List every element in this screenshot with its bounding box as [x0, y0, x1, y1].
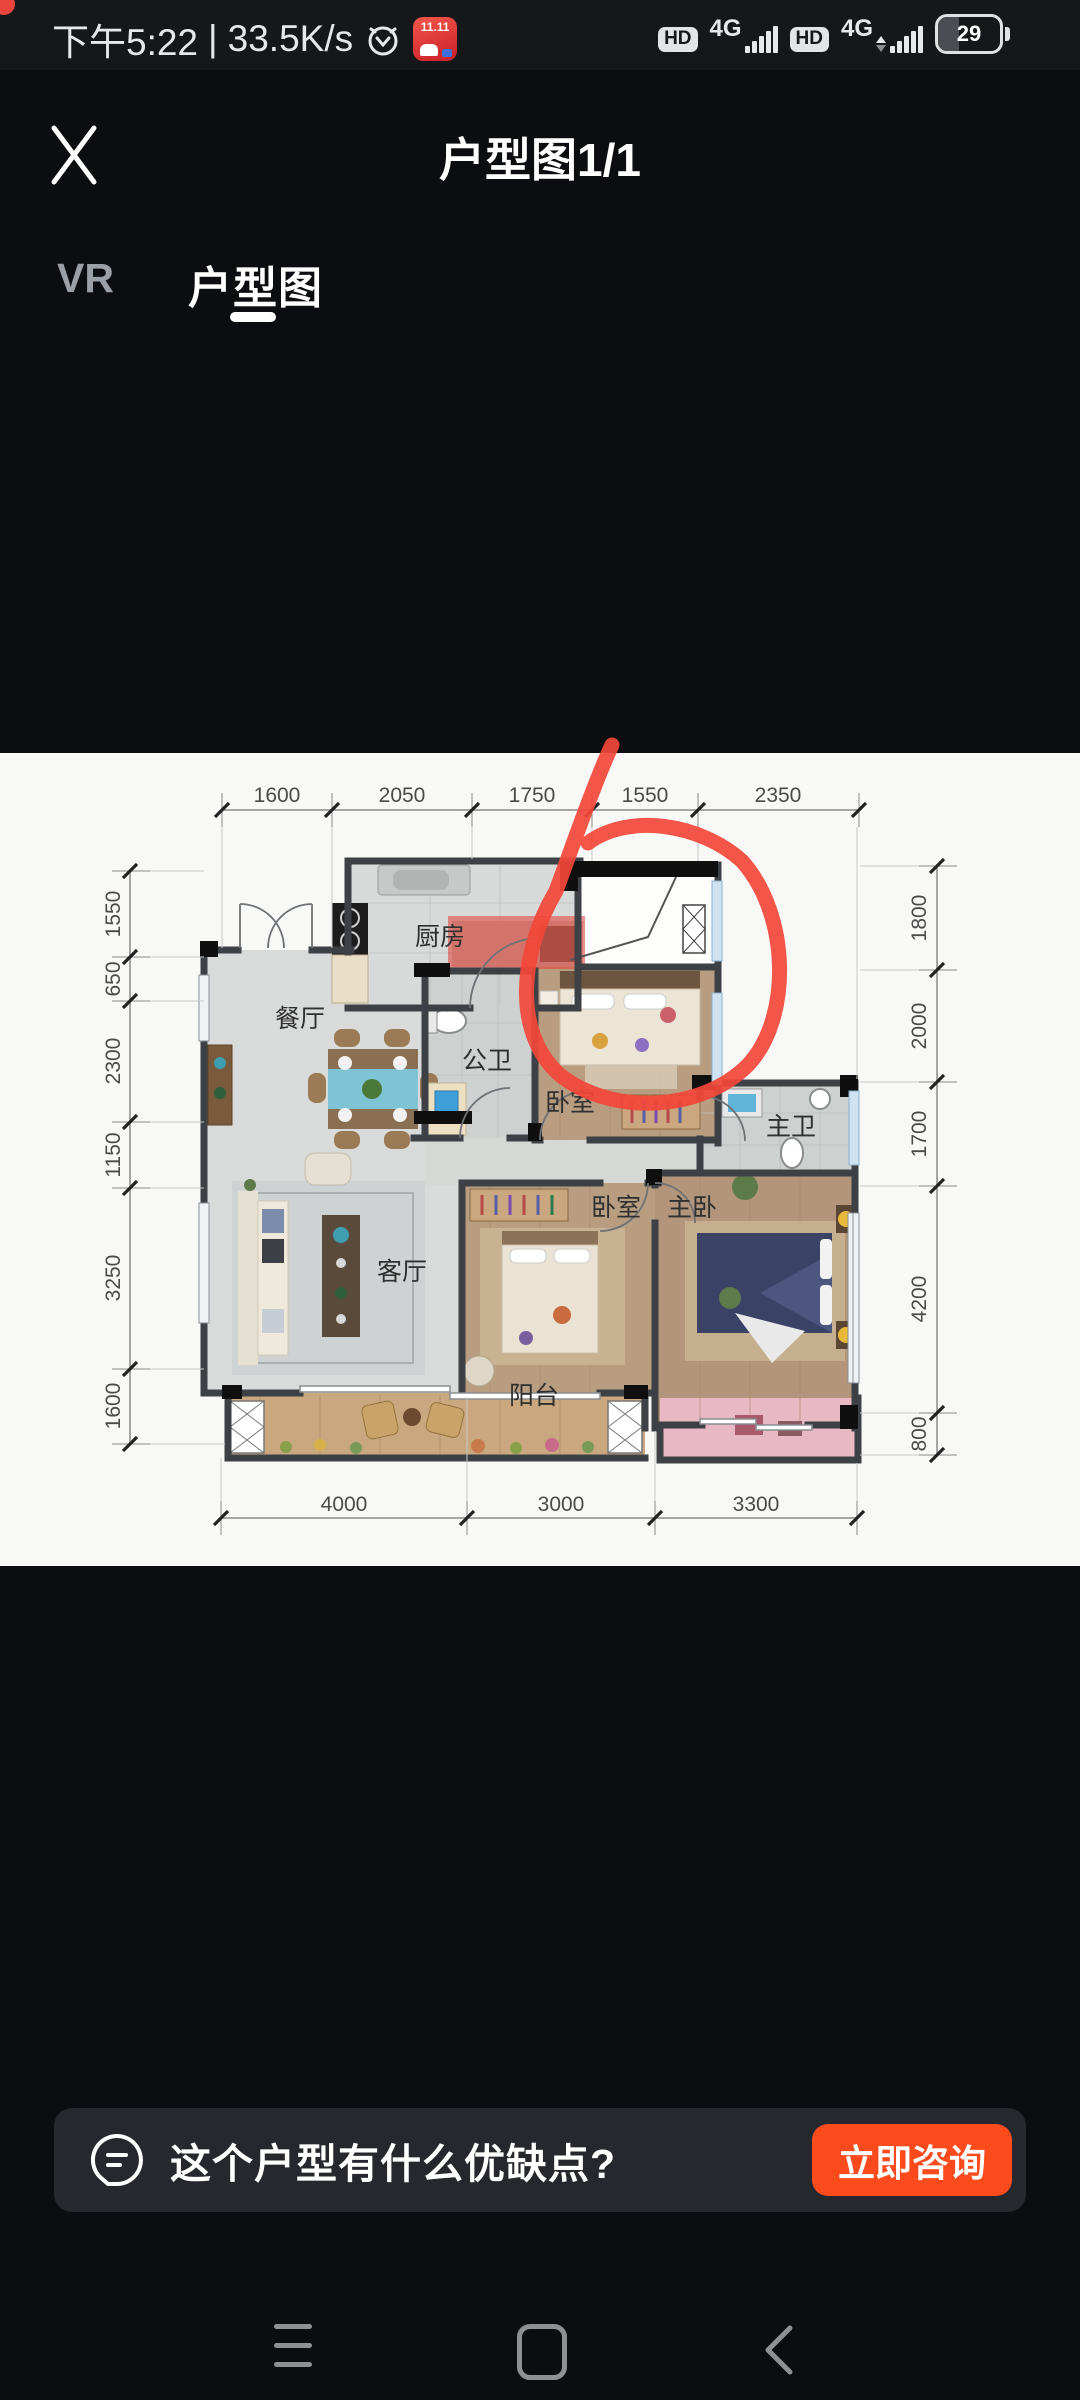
- dim-left-2: 2300: [102, 1038, 125, 1085]
- dim-left-4: 3250: [102, 1255, 125, 1302]
- consult-now-button[interactable]: 立即咨询: [812, 2124, 1012, 2196]
- room-label-master-bath: 主卫: [766, 1113, 816, 1141]
- dim-top-1: 2050: [379, 784, 426, 807]
- dim-bottom-1: 3000: [538, 1493, 585, 1516]
- signal-sim2: 4G: [841, 26, 923, 55]
- promo-app-badge: 11.11: [413, 20, 457, 34]
- dim-top-4: 2350: [755, 784, 802, 807]
- back-chevron-icon[interactable]: [760, 2324, 796, 2376]
- battery-percent: 29: [957, 21, 981, 47]
- recents-menu-icon[interactable]: [274, 2324, 312, 2367]
- home-icon[interactable]: [517, 2324, 567, 2380]
- signal-bars-icon-2: [890, 26, 923, 53]
- net-type-2: 4G: [841, 15, 873, 43]
- dim-right-1: 2000: [908, 1003, 931, 1050]
- status-bar: 下午5:22 | 33.5K/s 11.11 HD 4G HD 4G: [0, 0, 1080, 70]
- clock-time: 下午5:22: [52, 12, 198, 66]
- dim-left-1: 650: [102, 961, 125, 996]
- alarm-icon: [363, 19, 403, 59]
- consult-bar[interactable]: 这个户型有什么优缺点? 立即咨询: [54, 2108, 1026, 2212]
- signal-sim1: 4G: [710, 26, 778, 55]
- hd-badge-1: HD: [658, 27, 697, 52]
- room-label-balcony: 阳台: [509, 1382, 559, 1410]
- network-speed: 33.5K/s: [228, 18, 353, 60]
- room-label-public-bath: 公卫: [462, 1047, 512, 1075]
- chat-icon: [86, 2129, 148, 2191]
- consult-question[interactable]: 这个户型有什么优缺点?: [170, 2130, 616, 2190]
- room-label-dining: 餐厅: [275, 1005, 325, 1033]
- tab-floorplan[interactable]: 户型图: [188, 252, 323, 316]
- room-label-master-bedroom: 主卧: [667, 1194, 717, 1222]
- room-label-living: 客厅: [377, 1258, 427, 1286]
- page-title: 户型图1/1: [0, 124, 1080, 190]
- dim-top-2: 1750: [509, 784, 556, 807]
- floorplan-image[interactable]: 1600 2050 1750 1550 2350 4000 3000 3300 …: [0, 753, 1080, 1566]
- net-type-1: 4G: [710, 15, 742, 43]
- dim-right-2: 1700: [908, 1111, 931, 1158]
- room-label-kitchen: 厨房: [415, 923, 465, 951]
- hd-badge-2: HD: [790, 27, 829, 52]
- data-activity-icon: [876, 36, 886, 52]
- tab-active-underline: [230, 312, 276, 322]
- dim-left-3: 1150: [102, 1132, 125, 1177]
- status-left: 下午5:22 | 33.5K/s 11.11: [52, 12, 457, 66]
- notification-dot: [0, 0, 15, 15]
- dim-top-3: 1550: [622, 784, 669, 807]
- tab-vr[interactable]: VR: [57, 255, 114, 302]
- dim-right-4: 800: [908, 1416, 931, 1451]
- status-divider: |: [208, 18, 218, 60]
- dim-left-0: 1550: [102, 891, 125, 938]
- room-label-bedroom-mid: 卧室: [591, 1194, 641, 1222]
- dim-top-0: 1600: [254, 784, 301, 807]
- promo-app-icon: 11.11: [413, 17, 457, 61]
- dim-right-3: 4200: [908, 1276, 931, 1323]
- header: 户型图1/1: [0, 100, 1080, 230]
- dim-bottom-2: 3300: [733, 1493, 780, 1516]
- dim-bottom-0: 4000: [321, 1493, 368, 1516]
- battery-icon: 29: [935, 14, 1010, 54]
- android-nav-bar: [0, 2300, 1080, 2400]
- floorplan-drawing: 1600 2050 1750 1550 2350 4000 3000 3300 …: [0, 753, 1080, 1566]
- signal-bars-icon: [745, 26, 778, 53]
- status-right: HD 4G HD 4G 29: [658, 14, 1010, 55]
- dim-right-0: 1800: [908, 895, 931, 942]
- dim-left-5: 1600: [102, 1383, 125, 1430]
